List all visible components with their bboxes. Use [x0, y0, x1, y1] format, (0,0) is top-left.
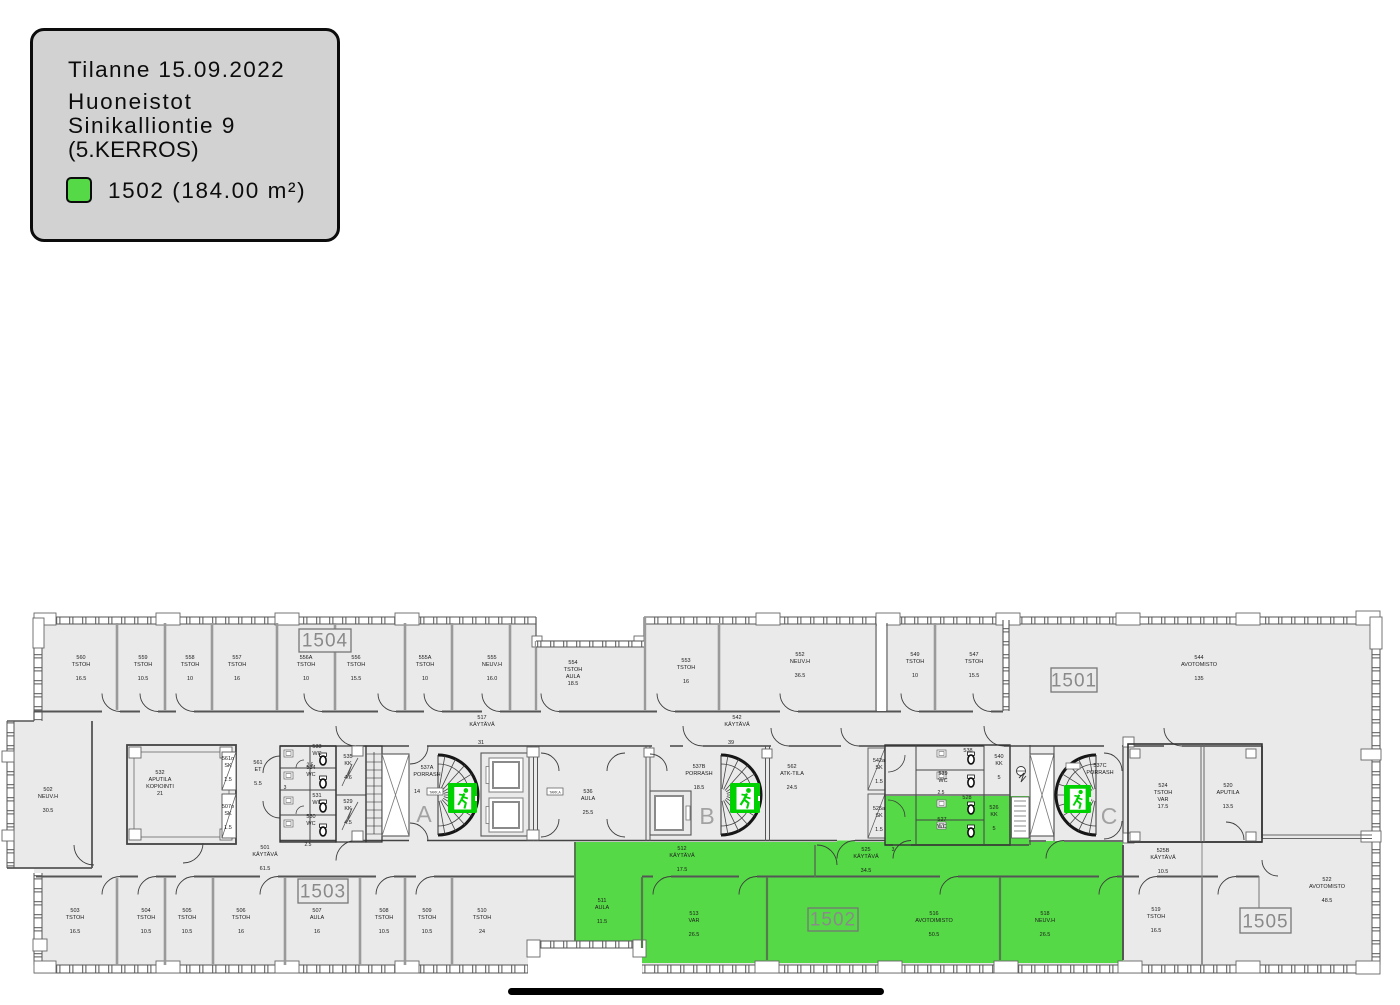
svg-text:TSTOH: TSTOH	[375, 915, 394, 921]
svg-text:561o: 561o	[222, 756, 234, 762]
svg-text:531: 531	[312, 793, 321, 799]
svg-text:10: 10	[912, 673, 918, 679]
svg-text:APUTILA: APUTILA	[149, 777, 172, 783]
svg-text:AULA: AULA	[595, 905, 610, 911]
svg-text:ET: ET	[254, 767, 262, 773]
svg-text:1505: 1505	[1242, 912, 1288, 933]
svg-text:554: 554	[568, 660, 577, 666]
svg-text:1.5: 1.5	[224, 825, 232, 831]
svg-text:2.5: 2.5	[307, 763, 314, 769]
svg-text:34.5: 34.5	[861, 868, 872, 874]
svg-text:533: 533	[312, 744, 321, 750]
svg-text:10.5: 10.5	[379, 929, 390, 935]
svg-text:542a: 542a	[873, 758, 886, 764]
svg-text:16: 16	[683, 679, 689, 685]
svg-text:555: 555	[487, 655, 496, 661]
svg-text:25.5: 25.5	[583, 810, 594, 816]
svg-text:24: 24	[479, 929, 485, 935]
svg-text:558: 558	[185, 655, 194, 661]
svg-text:536: 536	[583, 789, 592, 795]
svg-text:KK: KK	[990, 812, 998, 818]
svg-text:5.5: 5.5	[254, 781, 262, 787]
svg-text:15.5: 15.5	[351, 676, 362, 682]
svg-text:TSTOH: TSTOH	[297, 662, 316, 668]
svg-text:520: 520	[1223, 783, 1232, 789]
svg-text:540: 540	[994, 754, 1003, 760]
svg-text:AVOTOMISTO: AVOTOMISTO	[1309, 884, 1346, 890]
svg-text:APUTILA: APUTILA	[1217, 790, 1240, 796]
svg-text:532: 532	[155, 770, 164, 776]
svg-text:2.5: 2.5	[938, 790, 945, 796]
svg-text:561: 561	[253, 760, 262, 766]
svg-text:TSTOH: TSTOH	[564, 667, 583, 673]
svg-text:TSTOH: TSTOH	[347, 662, 366, 668]
svg-text:TSTOH: TSTOH	[1154, 790, 1173, 796]
svg-text:505: 505	[182, 908, 191, 914]
svg-text:AULA: AULA	[581, 796, 596, 802]
svg-text:503: 503	[70, 908, 79, 914]
svg-text:522: 522	[1322, 877, 1331, 883]
svg-text:10.5: 10.5	[182, 929, 193, 935]
svg-text:3: 3	[284, 785, 287, 791]
svg-text:KÄYTÄVÄ: KÄYTÄVÄ	[669, 852, 695, 859]
svg-text:4.5: 4.5	[344, 820, 352, 826]
svg-text:TSTOH: TSTOH	[416, 662, 435, 668]
svg-text:TSTOH: TSTOH	[66, 915, 85, 921]
svg-text:556A: 556A	[300, 655, 313, 661]
svg-text:1503: 1503	[300, 882, 346, 903]
svg-text:10.5: 10.5	[138, 676, 149, 682]
svg-text:16: 16	[234, 676, 240, 682]
svg-text:WC: WC	[306, 821, 315, 827]
svg-text:557: 557	[232, 655, 241, 661]
svg-text:WC: WC	[312, 800, 321, 806]
svg-text:5: 5	[992, 826, 995, 832]
svg-text:509: 509	[422, 908, 431, 914]
svg-text:10.5: 10.5	[1158, 869, 1169, 875]
svg-text:537B: 537B	[693, 764, 706, 770]
svg-text:TSTOH: TSTOH	[965, 659, 984, 665]
svg-text:504: 504	[141, 908, 150, 914]
svg-text:36.5: 36.5	[795, 673, 806, 679]
svg-text:502: 502	[43, 787, 52, 793]
svg-text:KOPIOINTI: KOPIOINTI	[146, 784, 174, 790]
svg-text:16.5: 16.5	[76, 676, 87, 682]
svg-text:547: 547	[969, 652, 978, 658]
svg-text:16.5: 16.5	[1151, 928, 1162, 934]
svg-text:SK: SK	[875, 765, 883, 771]
svg-text:TSTOH: TSTOH	[178, 915, 197, 921]
svg-text:542: 542	[732, 715, 741, 721]
svg-text:1.5: 1.5	[875, 827, 883, 833]
svg-text:538: 538	[963, 748, 972, 754]
svg-text:VAR: VAR	[1158, 797, 1169, 803]
svg-text:KÄYTÄVÄ: KÄYTÄVÄ	[252, 851, 278, 858]
svg-text:KK: KK	[995, 761, 1003, 767]
svg-text:TSTOH: TSTOH	[232, 915, 251, 921]
svg-text:WC: WC	[312, 751, 321, 757]
svg-text:A: A	[416, 801, 432, 827]
svg-text:535: 535	[343, 754, 352, 760]
svg-text:511: 511	[598, 898, 607, 904]
svg-text:539: 539	[938, 771, 947, 777]
svg-text:2.5: 2.5	[305, 842, 312, 848]
svg-text:135: 135	[1194, 676, 1203, 682]
svg-text:TSTOH: TSTOH	[1147, 914, 1166, 920]
svg-text:529: 529	[343, 799, 352, 805]
svg-text:AULA: AULA	[566, 674, 581, 680]
svg-text:3: 3	[892, 847, 895, 853]
svg-text:544: 544	[1194, 655, 1203, 661]
svg-text:5: 5	[997, 775, 1000, 781]
svg-text:18.5: 18.5	[694, 785, 705, 791]
svg-text:TSTOH: TSTOH	[677, 665, 696, 671]
svg-text:10: 10	[187, 676, 193, 682]
svg-text:506: 506	[236, 908, 245, 914]
svg-text:516: 516	[929, 911, 938, 917]
svg-text:525a: 525a	[873, 806, 886, 812]
svg-text:18.5: 18.5	[568, 681, 579, 687]
svg-text:16.5: 16.5	[70, 929, 81, 935]
svg-text:KÄYTÄVÄ: KÄYTÄVÄ	[1150, 854, 1176, 861]
svg-text:NEUV.H: NEUV.H	[482, 662, 502, 668]
svg-text:553: 553	[681, 658, 690, 664]
svg-text:48.5: 48.5	[1322, 898, 1333, 904]
svg-text:39: 39	[728, 740, 734, 746]
svg-text:31: 31	[478, 740, 484, 746]
svg-text:14: 14	[414, 789, 420, 795]
svg-text:555A: 555A	[419, 655, 432, 661]
svg-text:10: 10	[422, 676, 428, 682]
svg-text:10.5: 10.5	[141, 929, 152, 935]
svg-text:NEUV.H: NEUV.H	[38, 794, 58, 800]
svg-text:TARK.A: TARK.A	[549, 791, 561, 795]
svg-text:17.5: 17.5	[677, 867, 688, 873]
svg-text:21: 21	[157, 791, 163, 797]
svg-text:KÄYTÄVÄ: KÄYTÄVÄ	[853, 853, 879, 860]
svg-text:50.5: 50.5	[929, 932, 940, 938]
svg-text:26.5: 26.5	[689, 932, 700, 938]
svg-text:26.5: 26.5	[1040, 932, 1051, 938]
svg-text:4.6: 4.6	[344, 775, 352, 781]
svg-text:TSTOH: TSTOH	[137, 915, 156, 921]
svg-text:552: 552	[795, 652, 804, 658]
svg-text:537C: 537C	[1093, 763, 1106, 769]
svg-text:560: 560	[76, 655, 85, 661]
svg-text:507o: 507o	[222, 804, 234, 810]
svg-text:TSTOH: TSTOH	[906, 659, 925, 665]
svg-text:61.5: 61.5	[260, 866, 271, 872]
svg-text:16: 16	[238, 929, 244, 935]
svg-text:KÄYTÄVÄ: KÄYTÄVÄ	[469, 721, 495, 728]
svg-text:513: 513	[689, 911, 698, 917]
svg-text:TARK.A: TARK.A	[429, 791, 441, 795]
svg-text:KÄYTÄVÄ: KÄYTÄVÄ	[724, 721, 750, 728]
svg-text:AVOTOMISTO: AVOTOMISTO	[1181, 662, 1218, 668]
svg-text:AULA: AULA	[310, 915, 325, 921]
svg-text:WC: WC	[938, 778, 947, 784]
svg-text:16: 16	[314, 929, 320, 935]
svg-text:30.5: 30.5	[43, 808, 54, 814]
svg-text:SK: SK	[224, 763, 232, 769]
svg-text:TSTOH: TSTOH	[134, 662, 153, 668]
svg-text:TSTOH: TSTOH	[228, 662, 247, 668]
svg-text:507: 507	[312, 908, 321, 914]
svg-text:549: 549	[910, 652, 919, 658]
svg-text:526: 526	[989, 805, 998, 811]
svg-text:TSTOH: TSTOH	[72, 662, 91, 668]
svg-text:TSTOH: TSTOH	[418, 915, 437, 921]
svg-text:1502: 1502	[810, 910, 856, 931]
svg-text:10: 10	[303, 676, 309, 682]
svg-text:KK: KK	[344, 806, 352, 812]
svg-text:NEUV.H: NEUV.H	[1035, 918, 1055, 924]
svg-text:556: 556	[351, 655, 360, 661]
svg-text:512: 512	[677, 846, 686, 852]
svg-text:508: 508	[379, 908, 388, 914]
svg-text:TSTOH: TSTOH	[473, 915, 492, 921]
svg-text:1501: 1501	[1051, 671, 1097, 692]
svg-text:525: 525	[861, 847, 870, 853]
svg-text:PORRASH: PORRASH	[685, 771, 712, 777]
svg-text:537A: 537A	[421, 765, 434, 771]
svg-text:1504: 1504	[302, 631, 348, 652]
svg-text:17.5: 17.5	[1158, 804, 1169, 810]
svg-text:WC: WC	[306, 772, 315, 778]
svg-text:AVOTOIMISTO: AVOTOIMISTO	[915, 918, 953, 924]
svg-text:525B: 525B	[1157, 848, 1170, 854]
svg-text:530: 530	[306, 814, 315, 820]
svg-text:16.0: 16.0	[487, 676, 498, 682]
svg-text:C: C	[1101, 803, 1118, 829]
svg-text:15.5: 15.5	[969, 673, 980, 679]
svg-text:10.5: 10.5	[422, 929, 433, 935]
svg-text:517: 517	[477, 715, 486, 721]
svg-text:B: B	[699, 803, 714, 829]
svg-text:TSTOH: TSTOH	[181, 662, 200, 668]
svg-text:PORRASH: PORRASH	[413, 772, 440, 778]
svg-text:VAR: VAR	[689, 918, 700, 924]
svg-text:SK: SK	[875, 813, 883, 819]
svg-text:24.5: 24.5	[787, 785, 798, 791]
svg-text:SK: SK	[224, 811, 232, 817]
svg-text:501: 501	[260, 845, 269, 851]
svg-text:510: 510	[477, 908, 486, 914]
svg-text:562: 562	[787, 764, 796, 770]
svg-text:1.5: 1.5	[224, 777, 232, 783]
svg-text:KK: KK	[344, 761, 352, 767]
svg-text:ATK-TILA: ATK-TILA	[780, 771, 804, 777]
svg-text:NEUV.H: NEUV.H	[790, 659, 810, 665]
svg-text:524: 524	[1158, 783, 1167, 789]
svg-text:PORRASH: PORRASH	[1086, 770, 1113, 776]
svg-text:WC: WC	[937, 824, 946, 830]
svg-text:559: 559	[138, 655, 147, 661]
svg-text:1.5: 1.5	[875, 779, 883, 785]
svg-text:528: 528	[962, 795, 971, 801]
svg-text:11.5: 11.5	[597, 919, 607, 925]
svg-text:519: 519	[1151, 907, 1160, 913]
svg-text:527: 527	[937, 817, 946, 823]
svg-text:518: 518	[1040, 911, 1049, 917]
svg-text:13.5: 13.5	[1223, 804, 1234, 810]
